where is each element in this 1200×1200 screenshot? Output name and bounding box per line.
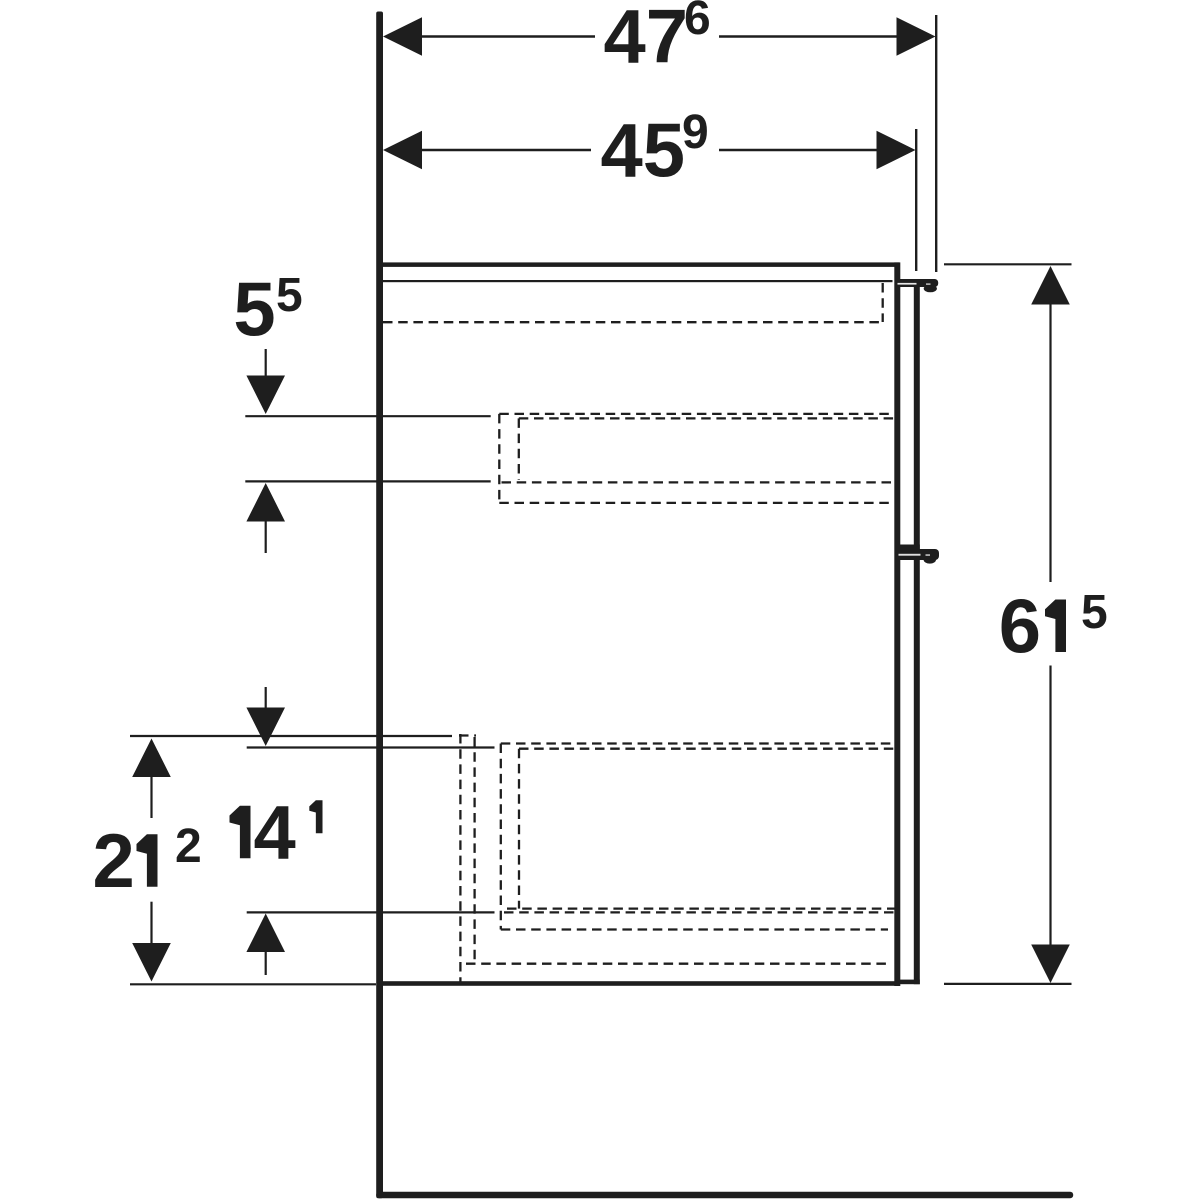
svg-text:4: 4 xyxy=(254,791,296,876)
svg-text:2: 2 xyxy=(175,820,202,873)
svg-text:45: 45 xyxy=(601,108,686,193)
svg-text:6: 6 xyxy=(684,0,711,45)
svg-text:47: 47 xyxy=(604,0,689,79)
svg-text:5: 5 xyxy=(276,269,303,322)
svg-text:5: 5 xyxy=(1081,586,1108,639)
svg-text:6: 6 xyxy=(999,585,1041,670)
svg-text:2: 2 xyxy=(93,819,135,904)
svg-text:9: 9 xyxy=(682,106,709,159)
svg-text:5: 5 xyxy=(233,267,275,352)
